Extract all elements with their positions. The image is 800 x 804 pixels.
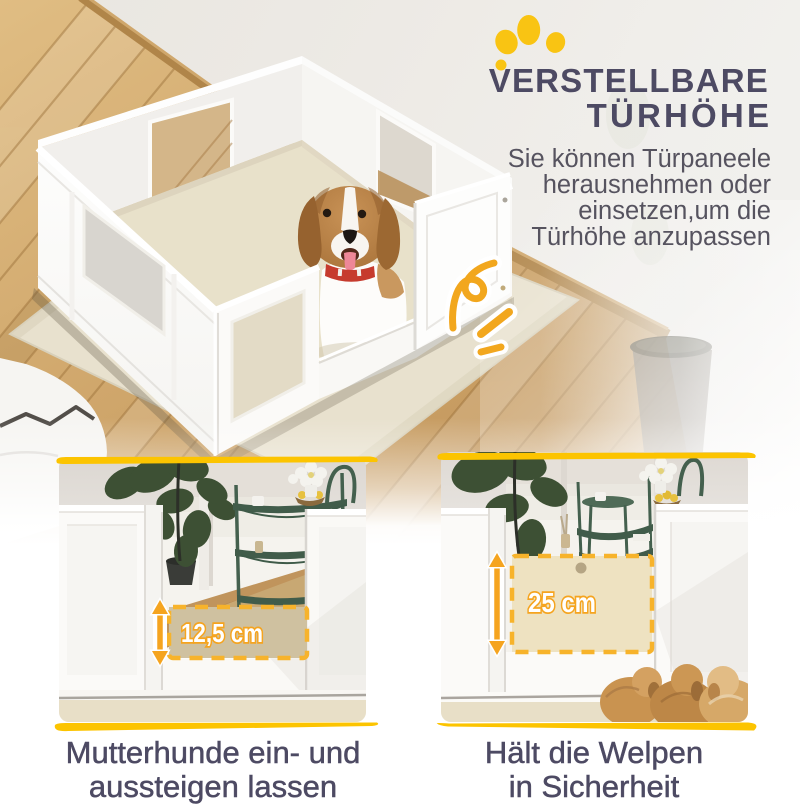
svg-text:25 cm: 25 cm (528, 587, 596, 618)
svg-text:12,5 cm: 12,5 cm (181, 618, 263, 648)
